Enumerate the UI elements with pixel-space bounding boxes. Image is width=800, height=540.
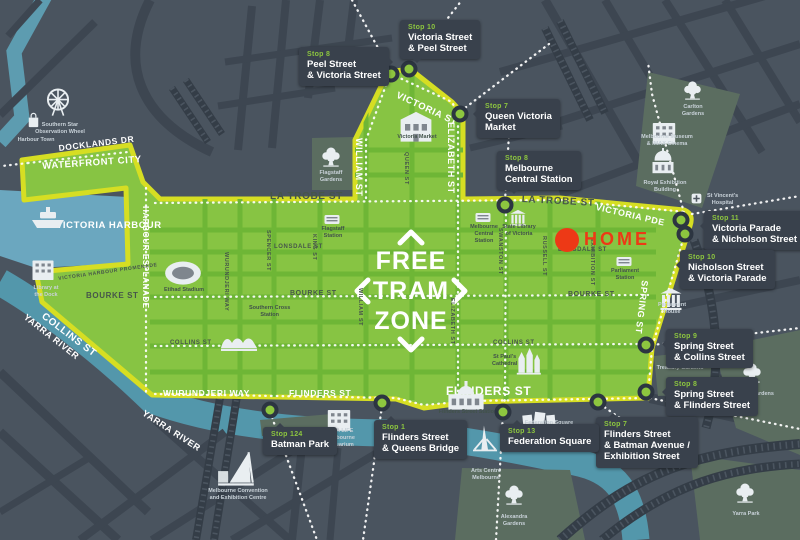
flinders-icon [444, 370, 488, 414]
stop-number: Stop 1 [382, 424, 459, 431]
st-pauls-cathedral-caption: St Paul'sCathedral [492, 354, 517, 368]
street-label: WILLIAM ST [354, 138, 364, 197]
callout-pointer [608, 408, 618, 418]
street-label: QUEEN ST [403, 152, 409, 185]
stop-name-line: Nicholson Street [688, 262, 767, 273]
stop-number: Stop 11 [712, 215, 797, 222]
free-tram-zone-wordmark: FREE TRAM ZONE [353, 246, 469, 336]
dome-icon [649, 148, 677, 176]
tram-stop-circle[interactable] [638, 384, 655, 401]
stop-name-line: Spring Street [674, 341, 745, 352]
zone-word-tram: TRAM [353, 276, 469, 306]
stop-number: Stop 10 [688, 254, 767, 261]
stop-name-line: Flinders Street [604, 429, 690, 440]
stop-name-line: Central Station [505, 174, 573, 185]
street-label: BOURKE ST [290, 290, 337, 297]
stop-7-flinders-batman-label: Stop 7Flinders Street& Batman Avenue /Ex… [596, 417, 698, 468]
stop-name-line: & Peel Street [408, 43, 472, 54]
tree-icon [503, 483, 525, 505]
free-tram-zone-map: FREE TRAM ZONE HOME DOCKLANDS DRWATERFRO… [0, 0, 800, 540]
stop-10-victoria-peel-label: Stop 10Victoria Street& Peel Street [400, 20, 480, 59]
stop-7-queen-victoria-market-label: Stop 7Queen VictoriaMarket [477, 99, 560, 138]
stop-8-melbourne-central-label: Stop 8MelbourneCentral Station [497, 151, 581, 190]
alexandra-gardens-caption: AlexandraGardens [501, 514, 528, 528]
tree-icon [734, 481, 756, 503]
bag-icon [24, 110, 43, 129]
street-label: RUSSELL ST [541, 236, 547, 276]
stop-8-peel-victoria-label: Stop 8Peel Street& Victoria Street [299, 47, 389, 86]
stop-name-line: & Victoria Parade [688, 273, 767, 284]
stop-10-nicholson-victoria-label: Stop 10Nicholson Street& Victoria Parade [680, 250, 775, 289]
street-label: SPENCER ST [265, 230, 271, 271]
southern-cross-station-caption: Southern CrossStation [249, 305, 290, 319]
stop-9-spring-collins-label: Stop 9Spring Street& Collins Street [666, 329, 753, 368]
stop-8-spring-flinders-label: Stop 8Spring Street& Flinders Street [666, 377, 758, 416]
stop-number: Stop 7 [604, 421, 690, 428]
stop-name-line: Federation Square [508, 436, 591, 447]
callout-pointer [671, 260, 681, 270]
spire-icon [470, 424, 500, 454]
stop-124-batman-park-label: Stop 124Batman Park [263, 427, 337, 455]
tram-stop-circle[interactable] [590, 394, 607, 411]
harbour-town-caption: Harbour Town [18, 137, 55, 144]
flagstaff-station-caption: FlagstaffStation [322, 226, 345, 240]
stop-name-line: Queen Victoria [485, 111, 552, 122]
melbourne-convention-centre-caption: Melbourne Conventionand Exhibition Centr… [208, 488, 268, 502]
parliament-station-caption: ParliamentStation [611, 268, 639, 282]
stop-11-victoria-nicholson-label: Stop 11Victoria Parade& Nicholson Street [704, 211, 800, 250]
stop-name-line: Peel Street [307, 59, 381, 70]
stop-name-line: & Flinders Street [674, 400, 750, 411]
callout-pointer [695, 221, 705, 231]
arts-centre-melbourne-caption: Arts CentreMelbourne [471, 468, 501, 482]
library-at-the-dock-caption: Library atthe Dock [33, 285, 58, 299]
stop-name-line: Spring Street [674, 389, 750, 400]
callout-pointer [468, 109, 478, 119]
street-label: WURUNDJERI WAY [223, 252, 229, 311]
etihad-stadium-caption: Etihad Stadium [164, 287, 204, 294]
stop-name-line: Victoria Street [408, 32, 472, 43]
waves-icon [219, 318, 259, 358]
carlton-gardens-caption: CarltonGardens [682, 104, 704, 118]
callout-pointer [657, 339, 667, 349]
stop-number: Stop 13 [508, 428, 591, 435]
stop-number: Stop 8 [307, 51, 381, 58]
callout-pointer [657, 387, 667, 397]
tram-stop-circle[interactable] [495, 404, 512, 421]
street-label: LA TROBE ST [270, 191, 343, 202]
tree-icon [682, 79, 703, 100]
tree-icon [320, 145, 342, 167]
stop-name-line: Flinders Street [382, 432, 459, 443]
flinders-street-station-caption: Flinders Street Station [439, 409, 498, 416]
tram-stop-circle[interactable] [374, 395, 391, 412]
home-marker-dot[interactable] [555, 228, 579, 252]
stop-number: Stop 124 [271, 431, 329, 438]
street-label: BOURKE ST [86, 291, 139, 300]
parliament-house-caption: ParliamentHouse [658, 302, 686, 316]
stop-name-line: & Queens Bridge [382, 443, 459, 454]
stop-name-line: & Batman Avenue / [604, 440, 690, 451]
state-library-caption: State Libraryof Victoria [502, 224, 536, 238]
street-label: ELIZABETH ST [446, 122, 456, 194]
tram-stop-circle[interactable] [452, 106, 469, 123]
stadium-icon [162, 250, 204, 292]
stop-name-line: Batman Park [271, 439, 329, 450]
queen-victoria-market-caption: Victoria Market [397, 134, 436, 141]
callout-pointer [512, 415, 522, 425]
stop-name-line: & Collins Street [674, 352, 745, 363]
zone-word-free: FREE [353, 246, 469, 276]
stop-number: Stop 10 [408, 24, 472, 31]
callout-pointer [275, 418, 285, 428]
street-label: COLLINS ST [170, 340, 212, 346]
callout-pointer [509, 189, 519, 199]
stop-name-line: Victoria Parade [712, 223, 797, 234]
stop-name-line: & Nicholson Street [712, 234, 797, 245]
stop-name-line: Market [485, 122, 552, 133]
convention-icon [216, 448, 258, 490]
street-label: WURUNDJERI WAY [163, 388, 250, 398]
building-icon [28, 253, 58, 283]
cross-icon [690, 192, 703, 205]
stop-name-line: & Victoria Street [307, 70, 381, 81]
st-vincents-hospital-caption: St Vincent'sHospital [707, 193, 738, 207]
yarra-park-caption: Yarra Park [732, 511, 759, 518]
stop-number: Stop 7 [485, 103, 552, 110]
melbourne-central-station-caption: MelbourneCentralStation [470, 224, 498, 245]
flagstaff-gardens-caption: FlagstaffGardens [320, 170, 343, 184]
street-label: VICTORIA HARBOUR [56, 220, 162, 231]
home-marker-label: HOME [584, 229, 650, 250]
wheel-icon [42, 86, 74, 118]
royal-exhibition-building-caption: Royal ExhibitionBuilding [643, 180, 686, 194]
ship-icon [28, 194, 68, 234]
stop-number: Stop 8 [674, 381, 750, 388]
stop-number: Stop 9 [674, 333, 745, 340]
stop-number: Stop 8 [505, 155, 573, 162]
tram-stop-circle[interactable] [638, 337, 655, 354]
stop-name-line: Exhibition Street [604, 451, 690, 462]
zone-word-zone: ZONE [353, 306, 469, 336]
callout-pointer [412, 58, 422, 68]
stop-name-line: Melbourne [505, 163, 573, 174]
tram-stop-circle[interactable] [677, 226, 694, 243]
callout-pointer [388, 57, 398, 67]
street-label: FLINDERS ST [289, 388, 351, 398]
tram-stop-circle[interactable] [262, 402, 279, 419]
street-label: BOURKE ST [568, 291, 615, 298]
stop-1-flinders-queens-label: Stop 1Flinders Street& Queens Bridge [374, 420, 467, 459]
street-label: KING ST [311, 234, 317, 261]
melbourne-museum-caption: Melbourne Museum& IMAX Cinema [641, 134, 693, 148]
callout-pointer [386, 411, 396, 421]
stop-13-federation-square-label: Stop 13Federation Square [500, 424, 599, 452]
